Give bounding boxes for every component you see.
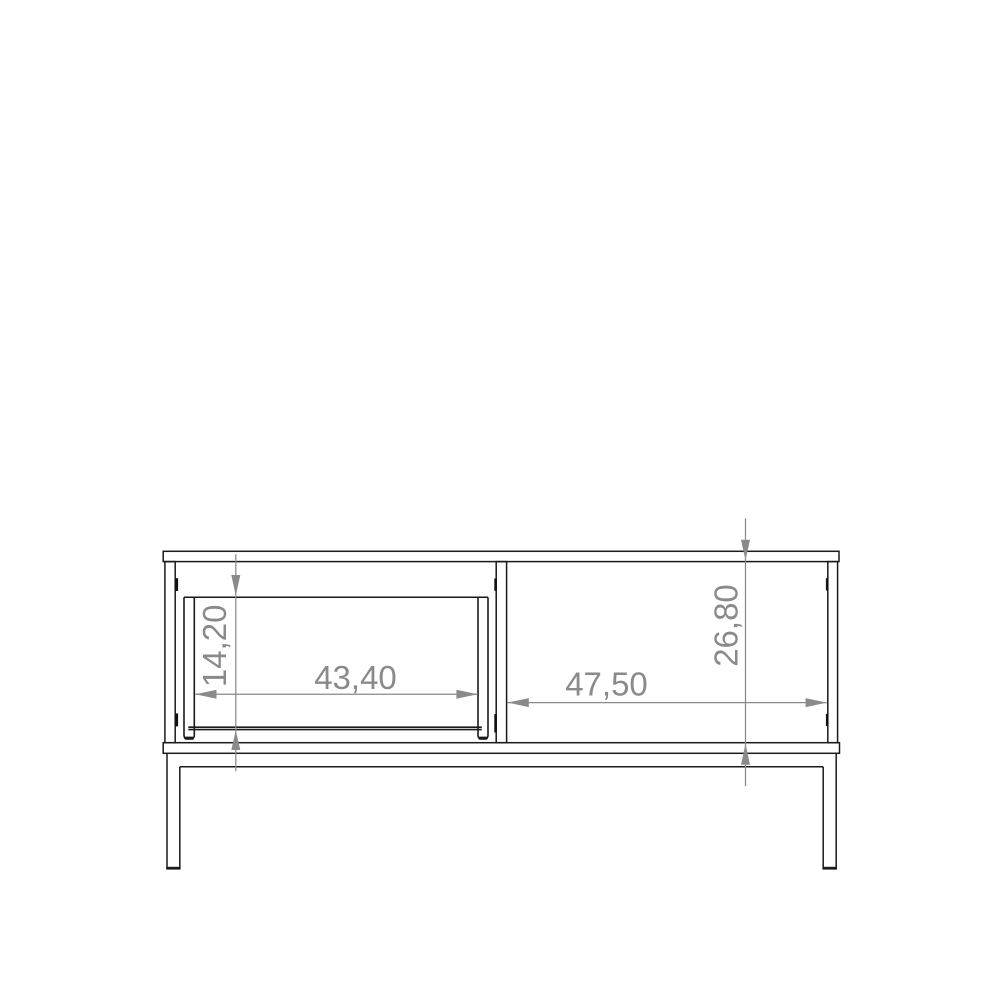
svg-text:26,80: 26,80 bbox=[708, 584, 745, 667]
svg-text:47,50: 47,50 bbox=[565, 666, 648, 703]
svg-text:43,40: 43,40 bbox=[314, 659, 397, 696]
svg-text:14,20: 14,20 bbox=[196, 605, 233, 688]
